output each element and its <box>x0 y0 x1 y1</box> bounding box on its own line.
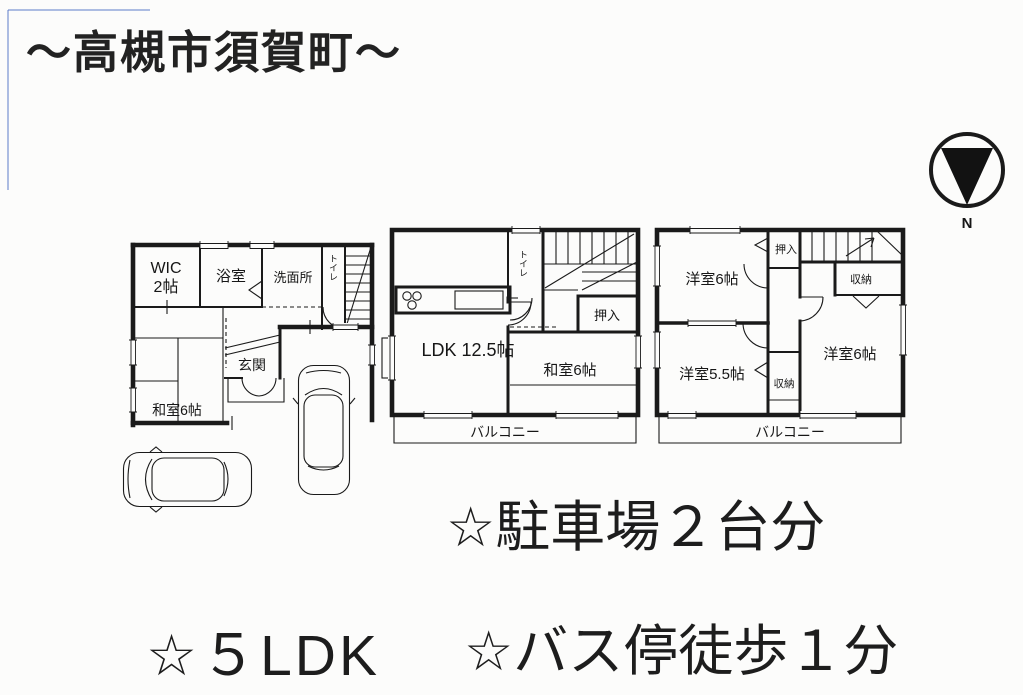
floor3-sw-door-arc <box>743 323 768 348</box>
floor3-closet-label: 押入 <box>775 242 797 256</box>
floor1-wic-label: WIC <box>150 260 181 277</box>
floor3-western-nw-label: 洋室6帖 <box>685 271 738 288</box>
compass: N <box>931 134 1003 232</box>
bath-folding-door <box>249 281 262 299</box>
floor2-toilet-door-arc <box>510 298 532 320</box>
floor1-toilet-label: トイレ <box>328 254 338 281</box>
floor2-japanese-room-label: 和室6帖 <box>543 362 596 379</box>
compass-needle-icon <box>941 148 993 205</box>
floor1-japanese-room-label: 和室6帖 <box>152 402 202 418</box>
kitchen-counter <box>396 287 510 313</box>
bay-window <box>382 338 389 378</box>
floor3-plan: 洋室6帖 押入 収納 洋室6帖 洋室5.5帖 収納 バルコニー <box>653 226 907 443</box>
entrance-door-left <box>242 378 259 396</box>
floor3-balcony-label: バルコニー <box>755 424 825 440</box>
floor3-western-sw-label: 洋室5.5帖 <box>679 366 745 383</box>
kitchen-sink <box>455 291 503 309</box>
floor1-entrance-label: 玄関 <box>238 357 266 373</box>
floor3-western-e-label: 洋室6帖 <box>823 346 876 363</box>
floorplan-canvas: WIC 2帖 浴室 洗面所 トイレ 玄関 和室6帖 <box>0 0 1023 695</box>
floor2-ldk-label: LDK 12.5帖 <box>421 340 514 360</box>
floor2-plan: LDK 12.5帖 トイレ 押入 和室6帖 バルコニー <box>382 226 642 443</box>
storage-door-chevron <box>853 296 879 308</box>
floor1-plan: WIC 2帖 浴室 洗面所 トイレ 玄関 和室6帖 <box>129 241 376 430</box>
compass-north-label: N <box>962 215 973 232</box>
floor2-balcony-label: バルコニー <box>470 424 540 440</box>
floor3-stairs <box>812 230 903 262</box>
scan-edge-artifact <box>8 10 150 190</box>
floor3-nw-door-arc <box>744 264 768 288</box>
storage-arrow-s <box>755 362 768 378</box>
car-vertical <box>293 366 355 495</box>
closet-arrow-nw <box>755 238 768 252</box>
floor3-e-door-arc <box>800 297 823 321</box>
floor3-storage-s-label: 収納 <box>774 377 795 390</box>
floor1-washroom-label: 洗面所 <box>273 270 312 285</box>
feature-parking: ☆駐車場２台分 <box>446 482 825 562</box>
floor1-stairs <box>345 247 372 327</box>
floor1-wic-size-label: 2帖 <box>154 278 179 296</box>
feature-bus-stop: ☆バス停徒歩１分 <box>464 606 898 686</box>
car-horizontal <box>124 447 252 512</box>
entrance-door-right <box>259 378 276 396</box>
floor3-storage-ne-label: 収納 <box>850 273 872 286</box>
floor2-stairs <box>543 230 638 290</box>
flyer-page: ～高槻市須賀町～ <box>0 0 1023 695</box>
feature-layout: ☆５LDK <box>146 610 380 692</box>
floor2-closet-label: 押入 <box>594 308 620 323</box>
floor2-toilet-label: トイレ <box>518 250 528 277</box>
floor1-bath-label: 浴室 <box>216 268 246 285</box>
